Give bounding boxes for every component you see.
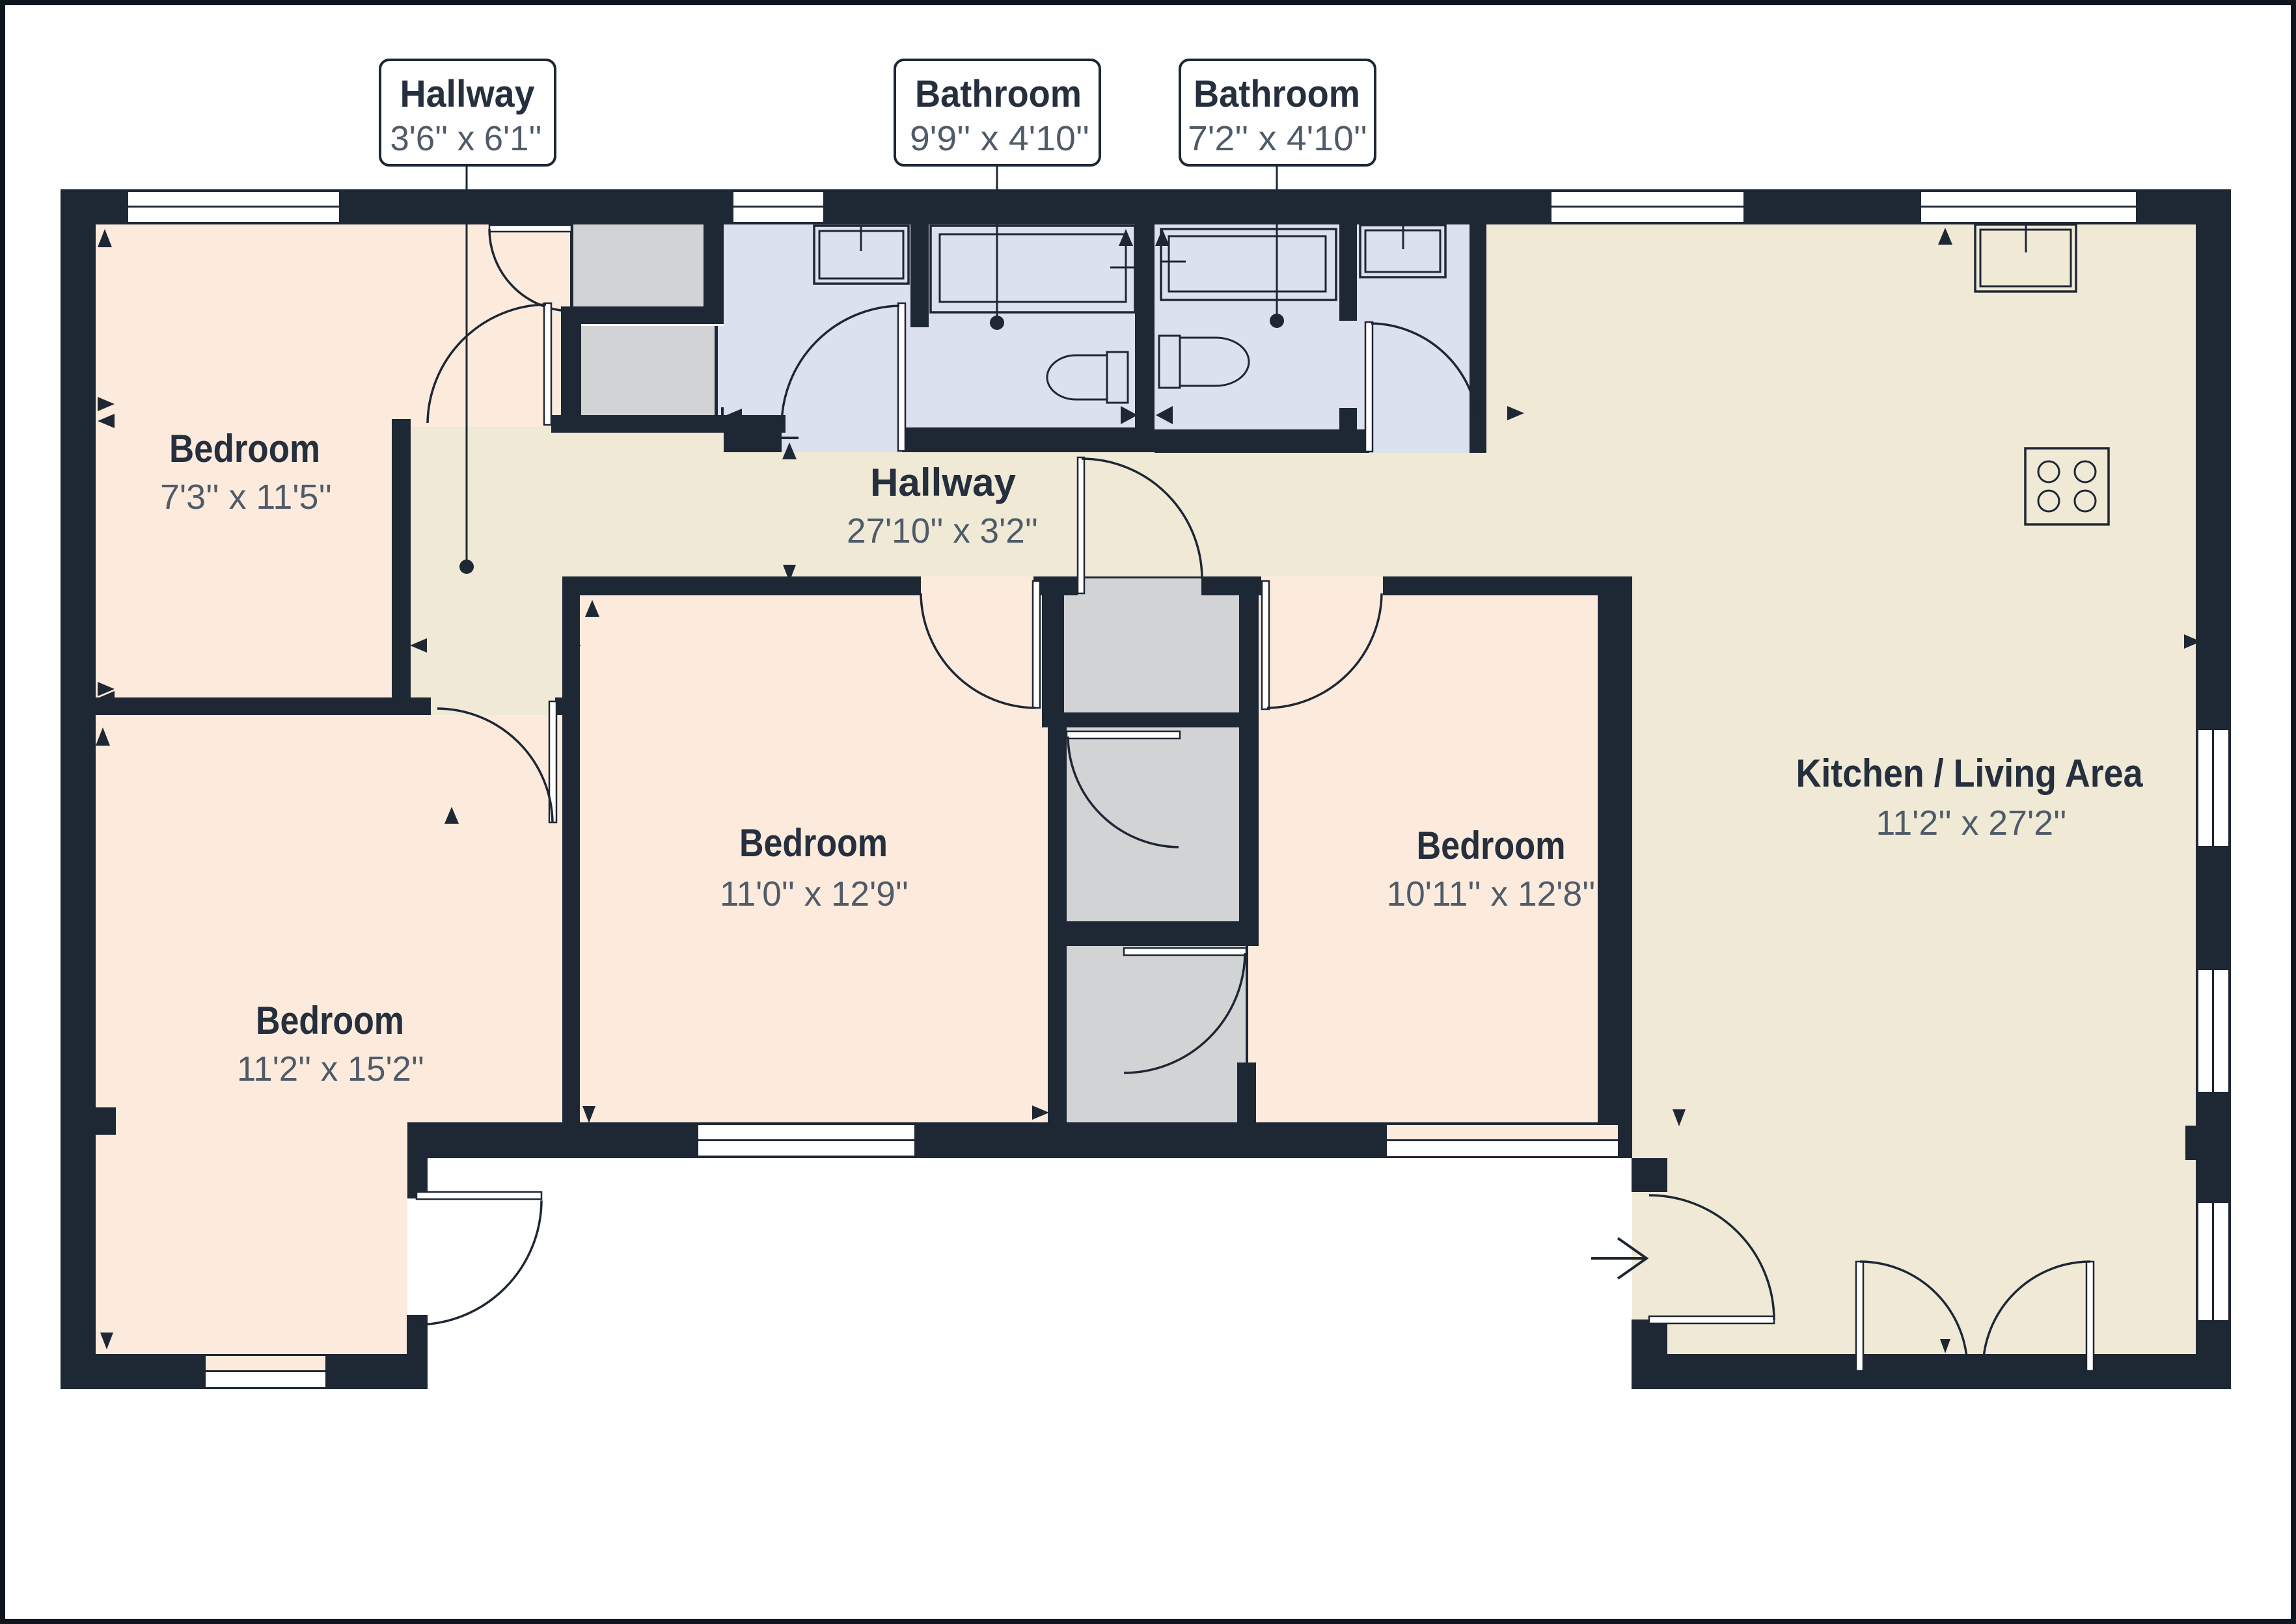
svg-text:27'10'' x 3'2'': 27'10'' x 3'2'' <box>847 511 1038 550</box>
svg-text:7'3'' x 11'5'': 7'3'' x 11'5'' <box>160 478 332 517</box>
svg-text:10'11'' x 12'8'': 10'11'' x 12'8'' <box>1387 874 1596 913</box>
svg-text:11'0'' x 12'9'': 11'0'' x 12'9'' <box>720 874 909 913</box>
svg-text:Bedroom: Bedroom <box>256 999 404 1042</box>
svg-text:Bathroom: Bathroom <box>915 73 1082 115</box>
svg-text:7'2'' x 4'10'': 7'2'' x 4'10'' <box>1188 119 1367 158</box>
svg-text:Bedroom: Bedroom <box>1417 824 1566 867</box>
svg-text:Bedroom: Bedroom <box>169 427 320 470</box>
svg-text:9'9'' x 4'10'': 9'9'' x 4'10'' <box>910 119 1089 158</box>
svg-text:11'2'' x 27'2'': 11'2'' x 27'2'' <box>1876 804 2067 843</box>
svg-text:Hallway: Hallway <box>870 461 1017 504</box>
svg-text:11'2'' x 15'2'': 11'2'' x 15'2'' <box>237 1049 424 1089</box>
svg-text:Bedroom: Bedroom <box>739 821 888 865</box>
svg-text:3'6'' x 6'1'': 3'6'' x 6'1'' <box>390 119 542 158</box>
svg-text:Hallway: Hallway <box>400 73 535 115</box>
svg-text:Bathroom: Bathroom <box>1194 73 1360 115</box>
svg-text:Kitchen / Living Area: Kitchen / Living Area <box>1796 751 2144 795</box>
